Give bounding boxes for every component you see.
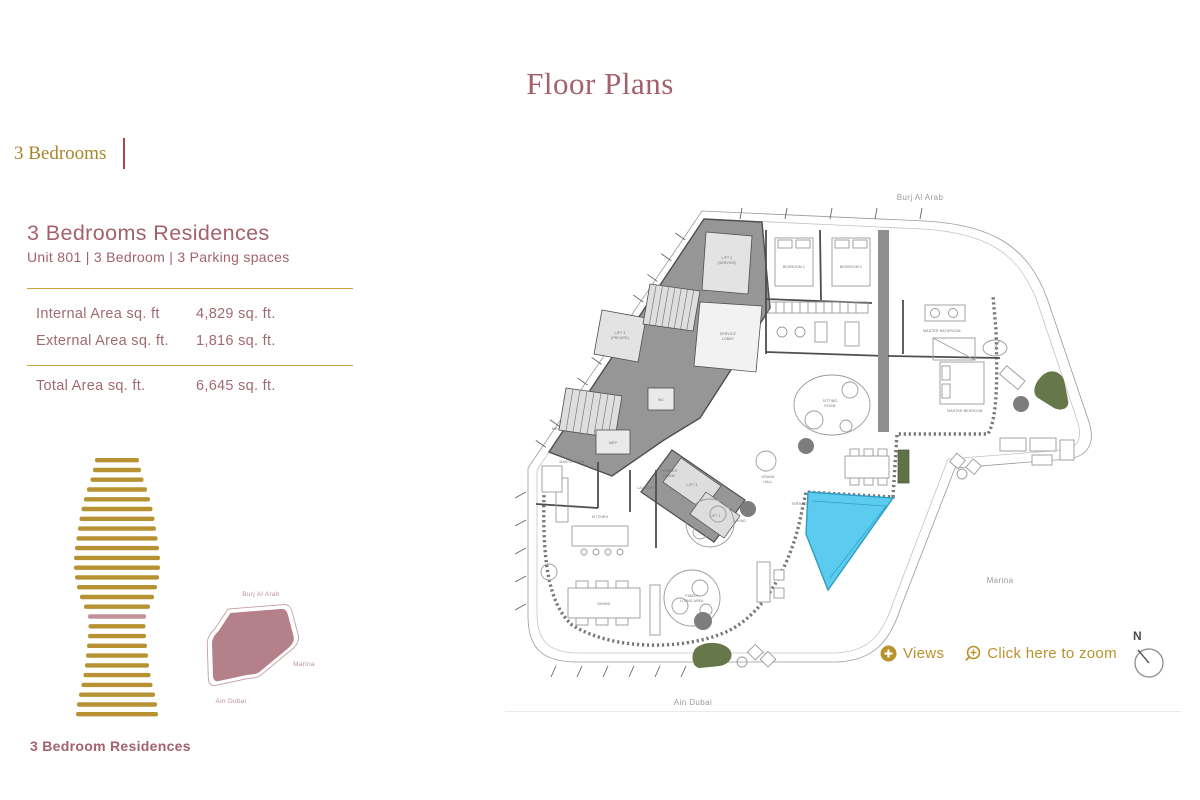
- master-bathroom-label: MASTER BATHROOM: [923, 329, 960, 333]
- tab-active-indicator: [123, 138, 125, 169]
- master-bedroom-label: MASTER BEDROOM: [947, 409, 982, 413]
- divider-total: [27, 365, 353, 366]
- service-lobby-label-2: LOBBY: [722, 337, 735, 341]
- lift2-sub-label: (SERVICE): [718, 261, 737, 265]
- divider-top: [27, 288, 353, 289]
- external-area-label: External Area sq. ft.: [36, 333, 169, 349]
- minimap-marina-label: Marina: [293, 661, 315, 668]
- plan-controls: Views Click here to zoom: [880, 645, 1117, 662]
- zoom-button[interactable]: Click here to zoom: [964, 645, 1117, 662]
- stairs-upper: [643, 284, 700, 331]
- lift4-sub-label: (PRIVATE): [611, 336, 629, 340]
- lift2-label: LIFT 2: [722, 256, 733, 260]
- bedroom-2: BEDROOM 2: [832, 238, 870, 286]
- plan-marina-label: Marina: [987, 576, 1014, 585]
- plan-ain-dubai-label: Ain Dubai: [674, 698, 712, 707]
- maids-room-label: MAID'S ROOM: [559, 460, 584, 464]
- lift3-label: LIFT 3: [687, 483, 698, 487]
- mep-label-1: MEP: [609, 441, 617, 445]
- lift4-label: LIFT 4: [615, 331, 626, 335]
- master-suite: MASTER BATHROOM MASTER BEDROOM: [923, 305, 1007, 413]
- bedroom-1: BEDROOM 1: [775, 238, 813, 286]
- minimap-ain-dubai-label: Ain Dubai: [216, 698, 247, 705]
- unit-heading: 3 Bedrooms Residences: [27, 221, 270, 246]
- bush-bottom: [693, 643, 732, 668]
- sitting-room-label-1: SITTING: [823, 399, 838, 403]
- powder-label-1: POWDER: [661, 469, 678, 473]
- kitchen-label: KITCHEN: [592, 515, 609, 519]
- maid-bed: [542, 466, 562, 492]
- views-button[interactable]: Views: [880, 645, 944, 662]
- swimming-pool: [806, 492, 893, 590]
- bush-right: [1034, 371, 1068, 409]
- sitting-room: SITTING ROOM: [794, 375, 870, 435]
- views-label: Views: [903, 645, 944, 662]
- dining-area: DINING: [568, 581, 660, 635]
- mep-label-2: MEP: [552, 427, 560, 431]
- tower-silhouette: [60, 450, 175, 722]
- family-living-label-1: FAMILY: [685, 594, 699, 598]
- plus-circle-icon: [880, 645, 897, 662]
- laundry-label: LAUNDRY: [637, 486, 655, 490]
- tab-3-bedrooms[interactable]: 3 Bedrooms: [14, 143, 106, 165]
- internal-area-value: 4,829 sq. ft.: [196, 306, 276, 322]
- tower-caption: 3 Bedroom Residences: [30, 738, 191, 754]
- total-area-value: 6,645 sq. ft.: [196, 378, 276, 394]
- location-minimap: Burj Al Arab Marina Ain Dubai: [200, 580, 330, 710]
- zoom-in-icon: [964, 645, 981, 662]
- total-area-label: Total Area sq. ft.: [36, 378, 145, 394]
- minimap-footprint: [211, 608, 295, 682]
- dining-label: DINING: [597, 602, 610, 606]
- wc-label: WC: [658, 398, 664, 402]
- compass-north-label: N: [1133, 629, 1142, 643]
- section-divider: [505, 711, 1181, 712]
- service-core: LIFT 2 (SERVICE) SERVICE LOBBY LIFT 4 (P…: [549, 219, 770, 476]
- grand-hall-label-1: GRAND: [761, 475, 775, 479]
- compass-needle: [1138, 650, 1149, 663]
- family-living-label-2: LIVING AREA: [680, 599, 704, 603]
- grand-hall-feature: [756, 451, 776, 471]
- sitting-room-label-2: ROOM: [824, 404, 835, 408]
- floor-plans-page: Floor Plans 3 Bedrooms 3 Bedrooms Reside…: [0, 0, 1200, 800]
- page-title: Floor Plans: [0, 66, 1200, 102]
- minimap-burj-label: Burj Al Arab: [242, 591, 280, 598]
- living-label: LIVING: [734, 519, 746, 523]
- floor-plan-image[interactable]: Burj Al Arab Marina Ain Dubai LIFT 2: [500, 185, 1200, 715]
- tower-floor-bars: [74, 458, 160, 716]
- compass: N: [1122, 622, 1174, 678]
- wall-band: [878, 230, 889, 432]
- internal-area-label: Internal Area sq. ft: [36, 306, 160, 322]
- zoom-label: Click here to zoom: [987, 645, 1117, 662]
- kitchen: KITCHEN: [556, 478, 628, 555]
- plan-burj-label: Burj Al Arab: [897, 193, 944, 202]
- bedrooms-tab-row: 3 Bedrooms: [14, 138, 125, 169]
- terrace-label: TERRACE: [791, 502, 809, 506]
- external-area-value: 1,816 sq. ft.: [196, 333, 276, 349]
- unit-subtitle: Unit 801 | 3 Bedroom | 3 Parking spaces: [27, 249, 290, 265]
- bedroom-wardrobes: [768, 302, 868, 346]
- grand-hall-label-2: HALL: [763, 480, 772, 484]
- bedroom2-label: BEDROOM 2: [840, 265, 862, 269]
- bedroom1-label: BEDROOM 1: [783, 265, 805, 269]
- powder-label-2: ROOM: [663, 474, 674, 478]
- service-lobby-label-1: SERVICE: [720, 332, 737, 336]
